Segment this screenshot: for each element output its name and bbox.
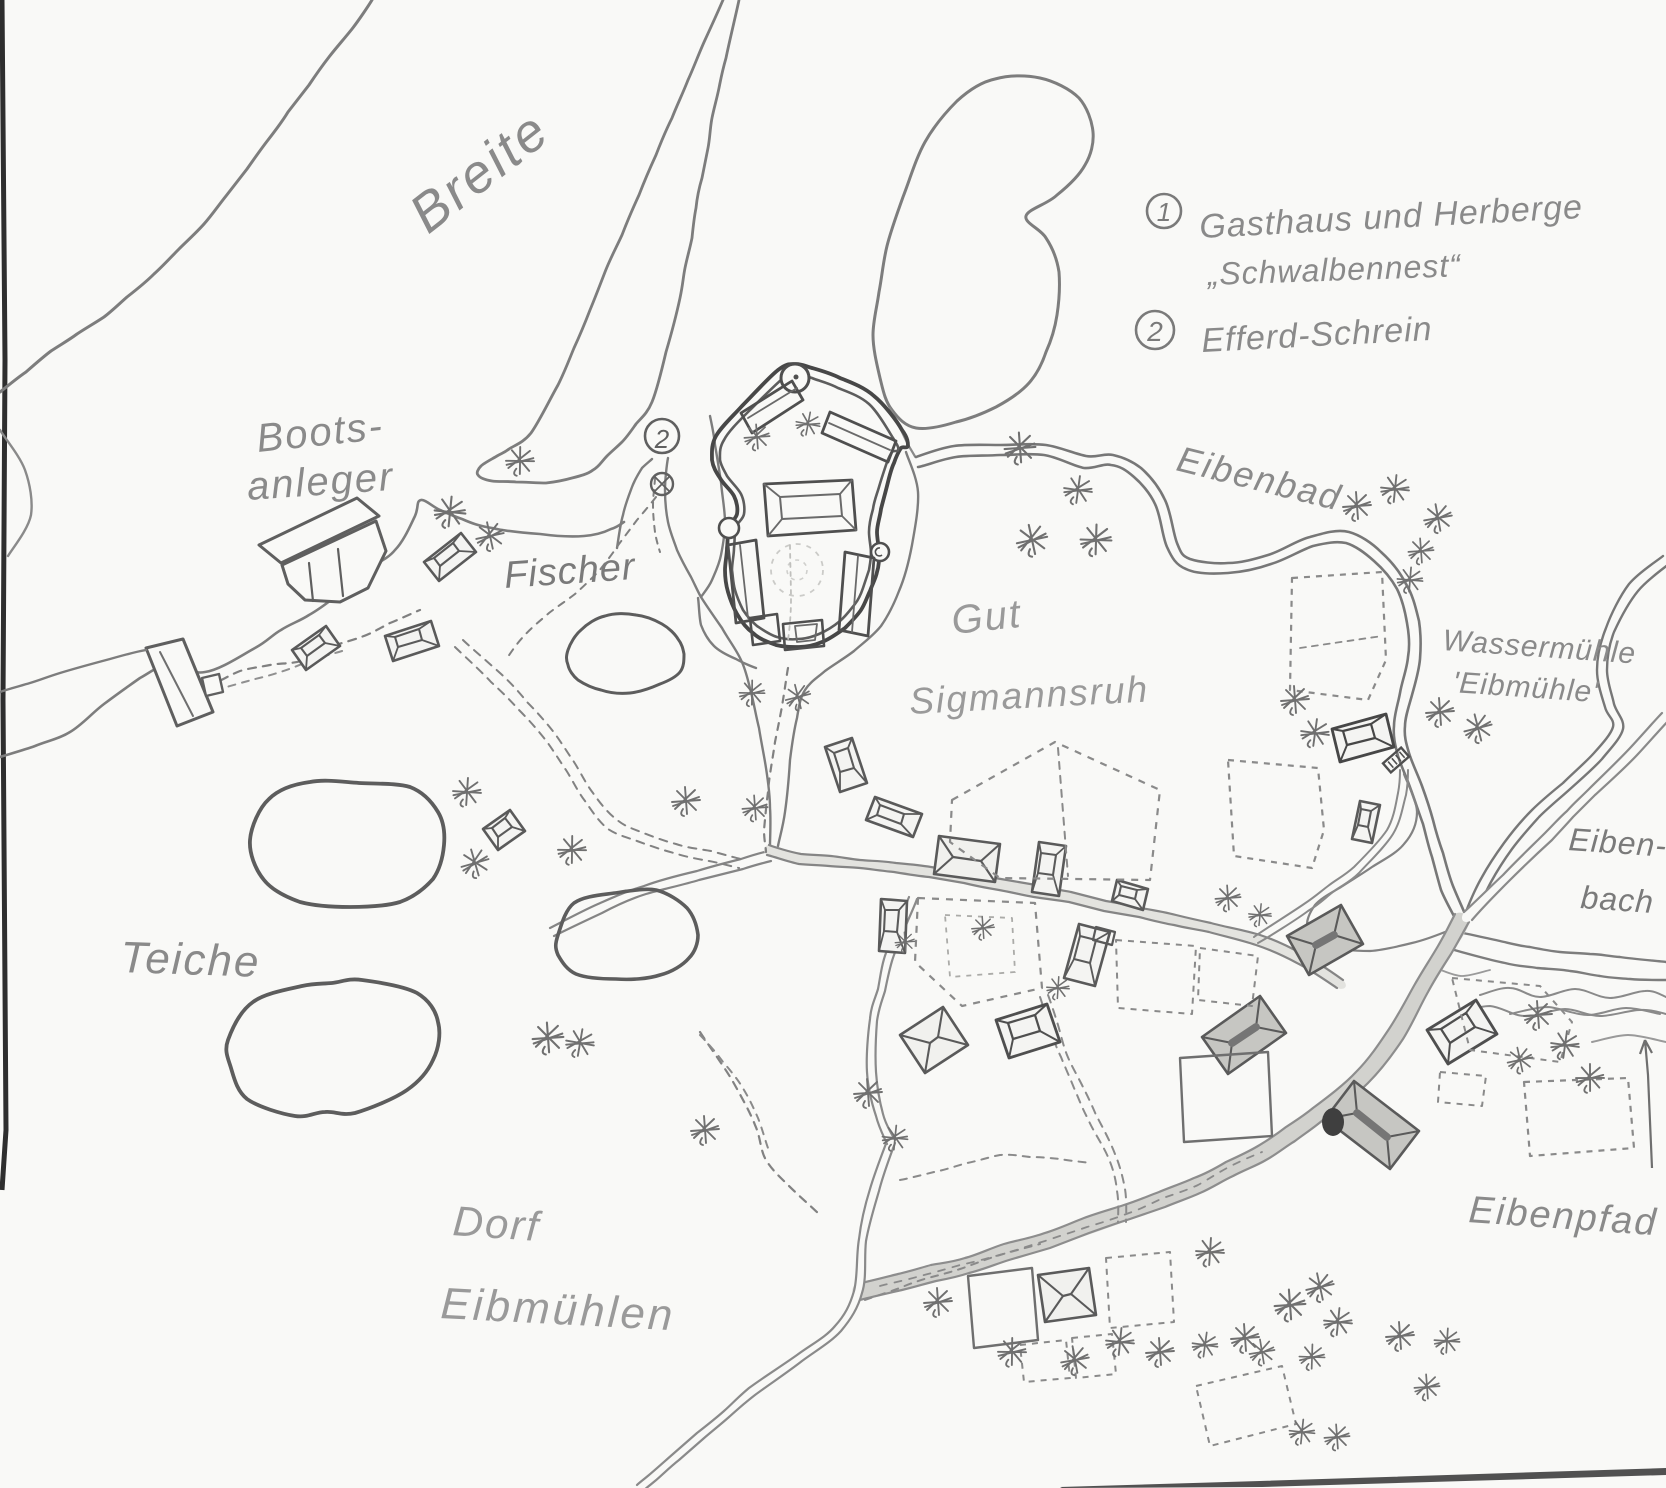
svg-text:Dorf: Dorf <box>451 1197 544 1250</box>
svg-text:1: 1 <box>1157 197 1171 227</box>
svg-text:bach: bach <box>1580 879 1656 920</box>
svg-text:Gut: Gut <box>949 592 1024 643</box>
svg-text:Eiben-: Eiben- <box>1568 821 1666 864</box>
svg-text:2: 2 <box>1146 316 1163 347</box>
svg-text:2: 2 <box>654 424 670 454</box>
svg-text:Teiche: Teiche <box>120 933 262 987</box>
